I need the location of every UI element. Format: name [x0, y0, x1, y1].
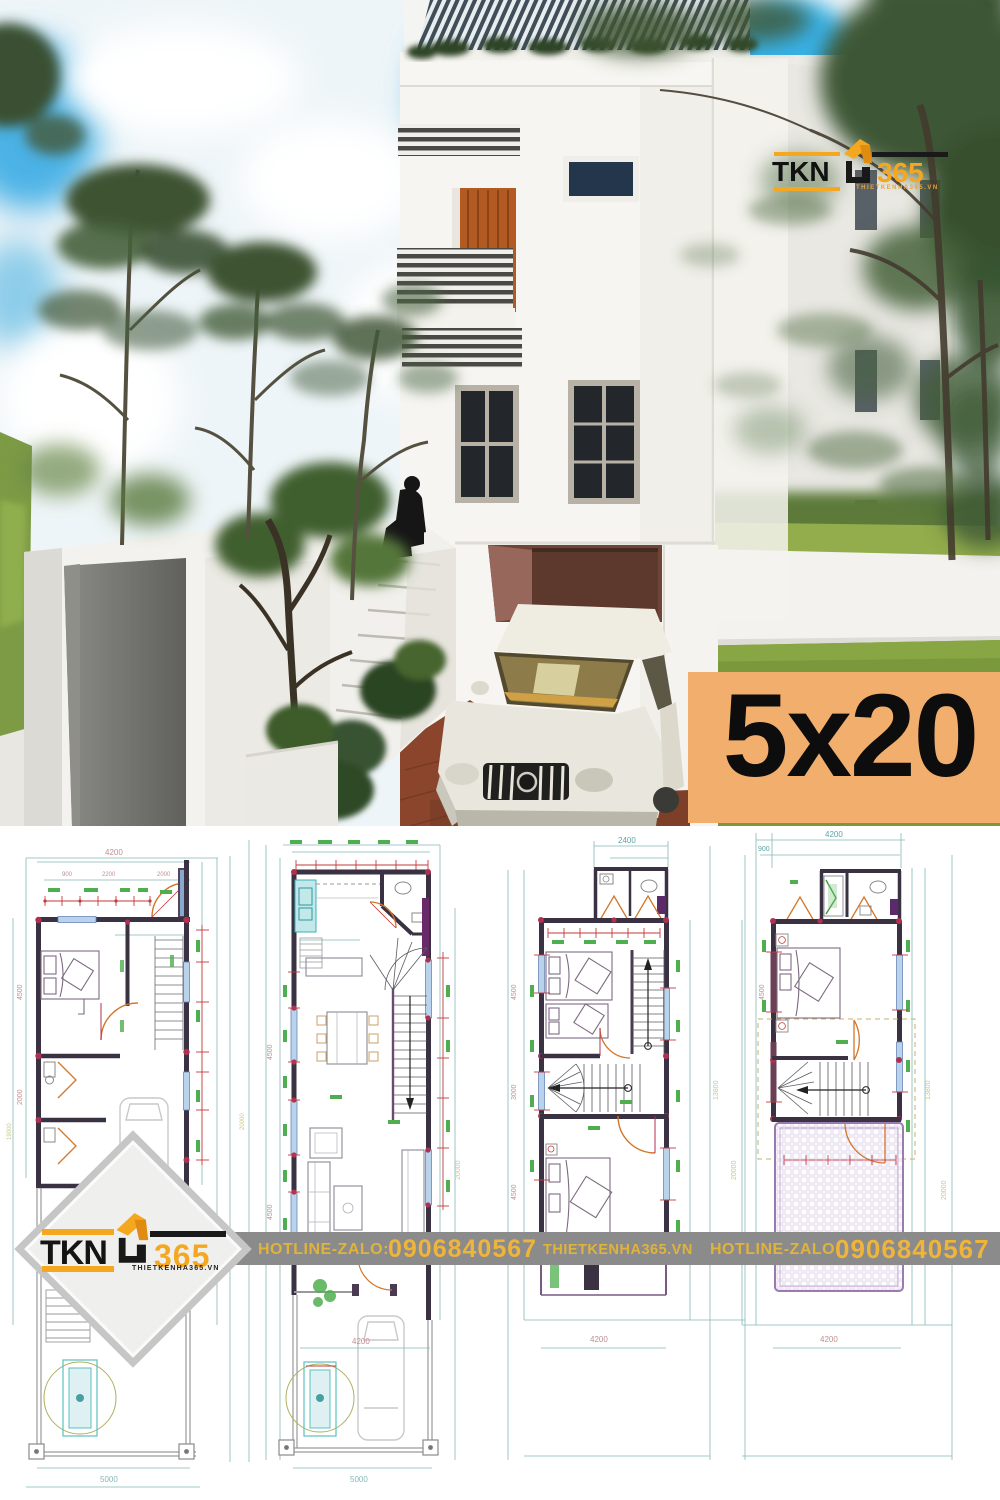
svg-text:20000: 20000	[731, 1160, 738, 1180]
svg-text:4200: 4200	[820, 1335, 838, 1344]
svg-text:4500: 4500	[759, 984, 766, 1000]
svg-text:4200: 4200	[590, 1335, 608, 1344]
svg-text:4200: 4200	[105, 848, 123, 857]
svg-text:4500: 4500	[511, 1184, 518, 1200]
svg-text:900: 900	[758, 846, 770, 853]
svg-text:5000: 5000	[350, 1475, 368, 1484]
svg-text:2000: 2000	[17, 1089, 24, 1105]
svg-text:20000: 20000	[455, 1160, 462, 1180]
svg-text:2000: 2000	[157, 872, 171, 878]
svg-text:5000: 5000	[100, 1475, 118, 1484]
svg-text:20000: 20000	[941, 1180, 948, 1200]
svg-text:4500: 4500	[17, 984, 24, 1000]
svg-text:13800: 13800	[713, 1080, 720, 1100]
svg-text:19000: 19000	[7, 1123, 13, 1140]
svg-text:20000: 20000	[240, 1113, 246, 1130]
svg-text:3000: 3000	[511, 1084, 518, 1100]
svg-text:2200: 2200	[102, 872, 116, 878]
svg-text:4500: 4500	[511, 984, 518, 1000]
svg-text:4200: 4200	[825, 830, 843, 839]
svg-text:4200: 4200	[352, 1337, 370, 1346]
svg-text:4500: 4500	[267, 1204, 274, 1220]
svg-text:4500: 4500	[267, 1044, 274, 1060]
svg-text:13800: 13800	[925, 1080, 932, 1100]
svg-text:2400: 2400	[618, 836, 636, 845]
svg-text:900: 900	[62, 872, 73, 878]
